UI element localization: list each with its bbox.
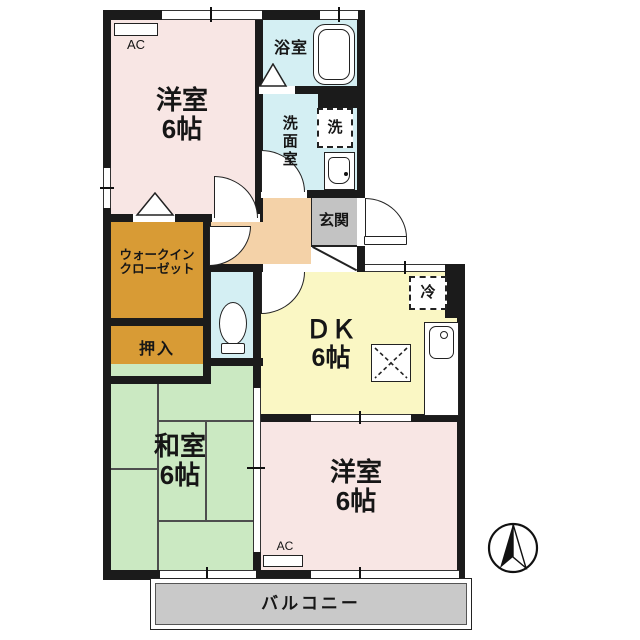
label-dk-size: 6帖 [259, 344, 403, 372]
balcony: バルコニー [150, 578, 472, 630]
wall-wic-oshiire-divider [103, 318, 211, 326]
kitchen-faucet [440, 331, 448, 339]
label-western-bottom-name: 洋室 [286, 458, 426, 487]
label-oshiire: 押入 [111, 341, 203, 359]
window-western-top [162, 10, 262, 20]
ac-unit-top [114, 23, 158, 36]
label-washroom: 洗面室 [280, 104, 297, 180]
window-tick [100, 187, 114, 189]
window-tick [404, 261, 406, 274]
entrance-step-line [311, 245, 357, 247]
bathtub-inner [318, 29, 350, 80]
north-compass-icon [485, 520, 541, 576]
hallway-upper [263, 198, 311, 222]
ac-label-top: AC [118, 38, 154, 53]
toilet-tank [221, 343, 245, 354]
label-western-bottom-size: 6帖 [286, 487, 426, 516]
label-western-top-name: 洋室 [112, 86, 252, 115]
label-western-top-size: 6帖 [112, 115, 252, 144]
floor-plan: AC AC 洗 冷 バルコニー 洋室 6帖 浴室 [0, 0, 640, 640]
entrance-step-diagonal [312, 246, 357, 271]
wall-oshiire-bottom [103, 376, 211, 384]
label-japanese-name: 和室 [107, 432, 253, 461]
door-leaf-entrance [364, 236, 407, 245]
washbasin-drain [344, 172, 348, 176]
label-wic: ウォークイン クローゼット [107, 248, 207, 276]
label-japanese-size: 6帖 [107, 461, 253, 490]
opening-japanese-western-slider [253, 388, 261, 552]
label-wic-line2: クローゼット [107, 262, 207, 276]
wall-fridge-pier [445, 264, 465, 318]
folding-door-triangle-wic [135, 192, 175, 217]
label-western-top: 洋室 6帖 [112, 86, 252, 144]
balcony-deck: バルコニー [155, 583, 467, 625]
folding-door-triangle-bath [258, 63, 288, 88]
balcony-label: バルコニー [261, 594, 361, 613]
label-bath: 浴室 [264, 40, 318, 58]
washbasin-bowl [328, 157, 350, 184]
wall-bath-divider-block [318, 86, 365, 108]
window-tick [338, 7, 340, 22]
label-western-bottom: 洋室 6帖 [286, 458, 426, 516]
door-arc-entrance [365, 198, 407, 238]
label-entrance: 玄関 [313, 213, 355, 230]
label-dk: ＤＫ 6帖 [259, 316, 403, 372]
washing-machine-label: 洗 [327, 120, 342, 137]
ac-unit-bottom [263, 555, 303, 567]
ac-label-bottom: AC [268, 540, 302, 553]
tatami-line [157, 520, 253, 522]
wall-left [103, 10, 111, 580]
refrigerator-label: 冷 [420, 285, 435, 302]
label-wic-line1: ウォークイン [107, 248, 207, 262]
window-tick [210, 7, 212, 22]
opening-dk-western [311, 414, 411, 422]
toilet-bowl [219, 302, 247, 345]
label-dk-name: ＤＫ [259, 316, 403, 344]
washing-machine: 洗 [317, 108, 353, 148]
refrigerator: 冷 [409, 276, 447, 310]
window-tick [359, 411, 361, 424]
label-japanese: 和室 6帖 [107, 432, 253, 490]
